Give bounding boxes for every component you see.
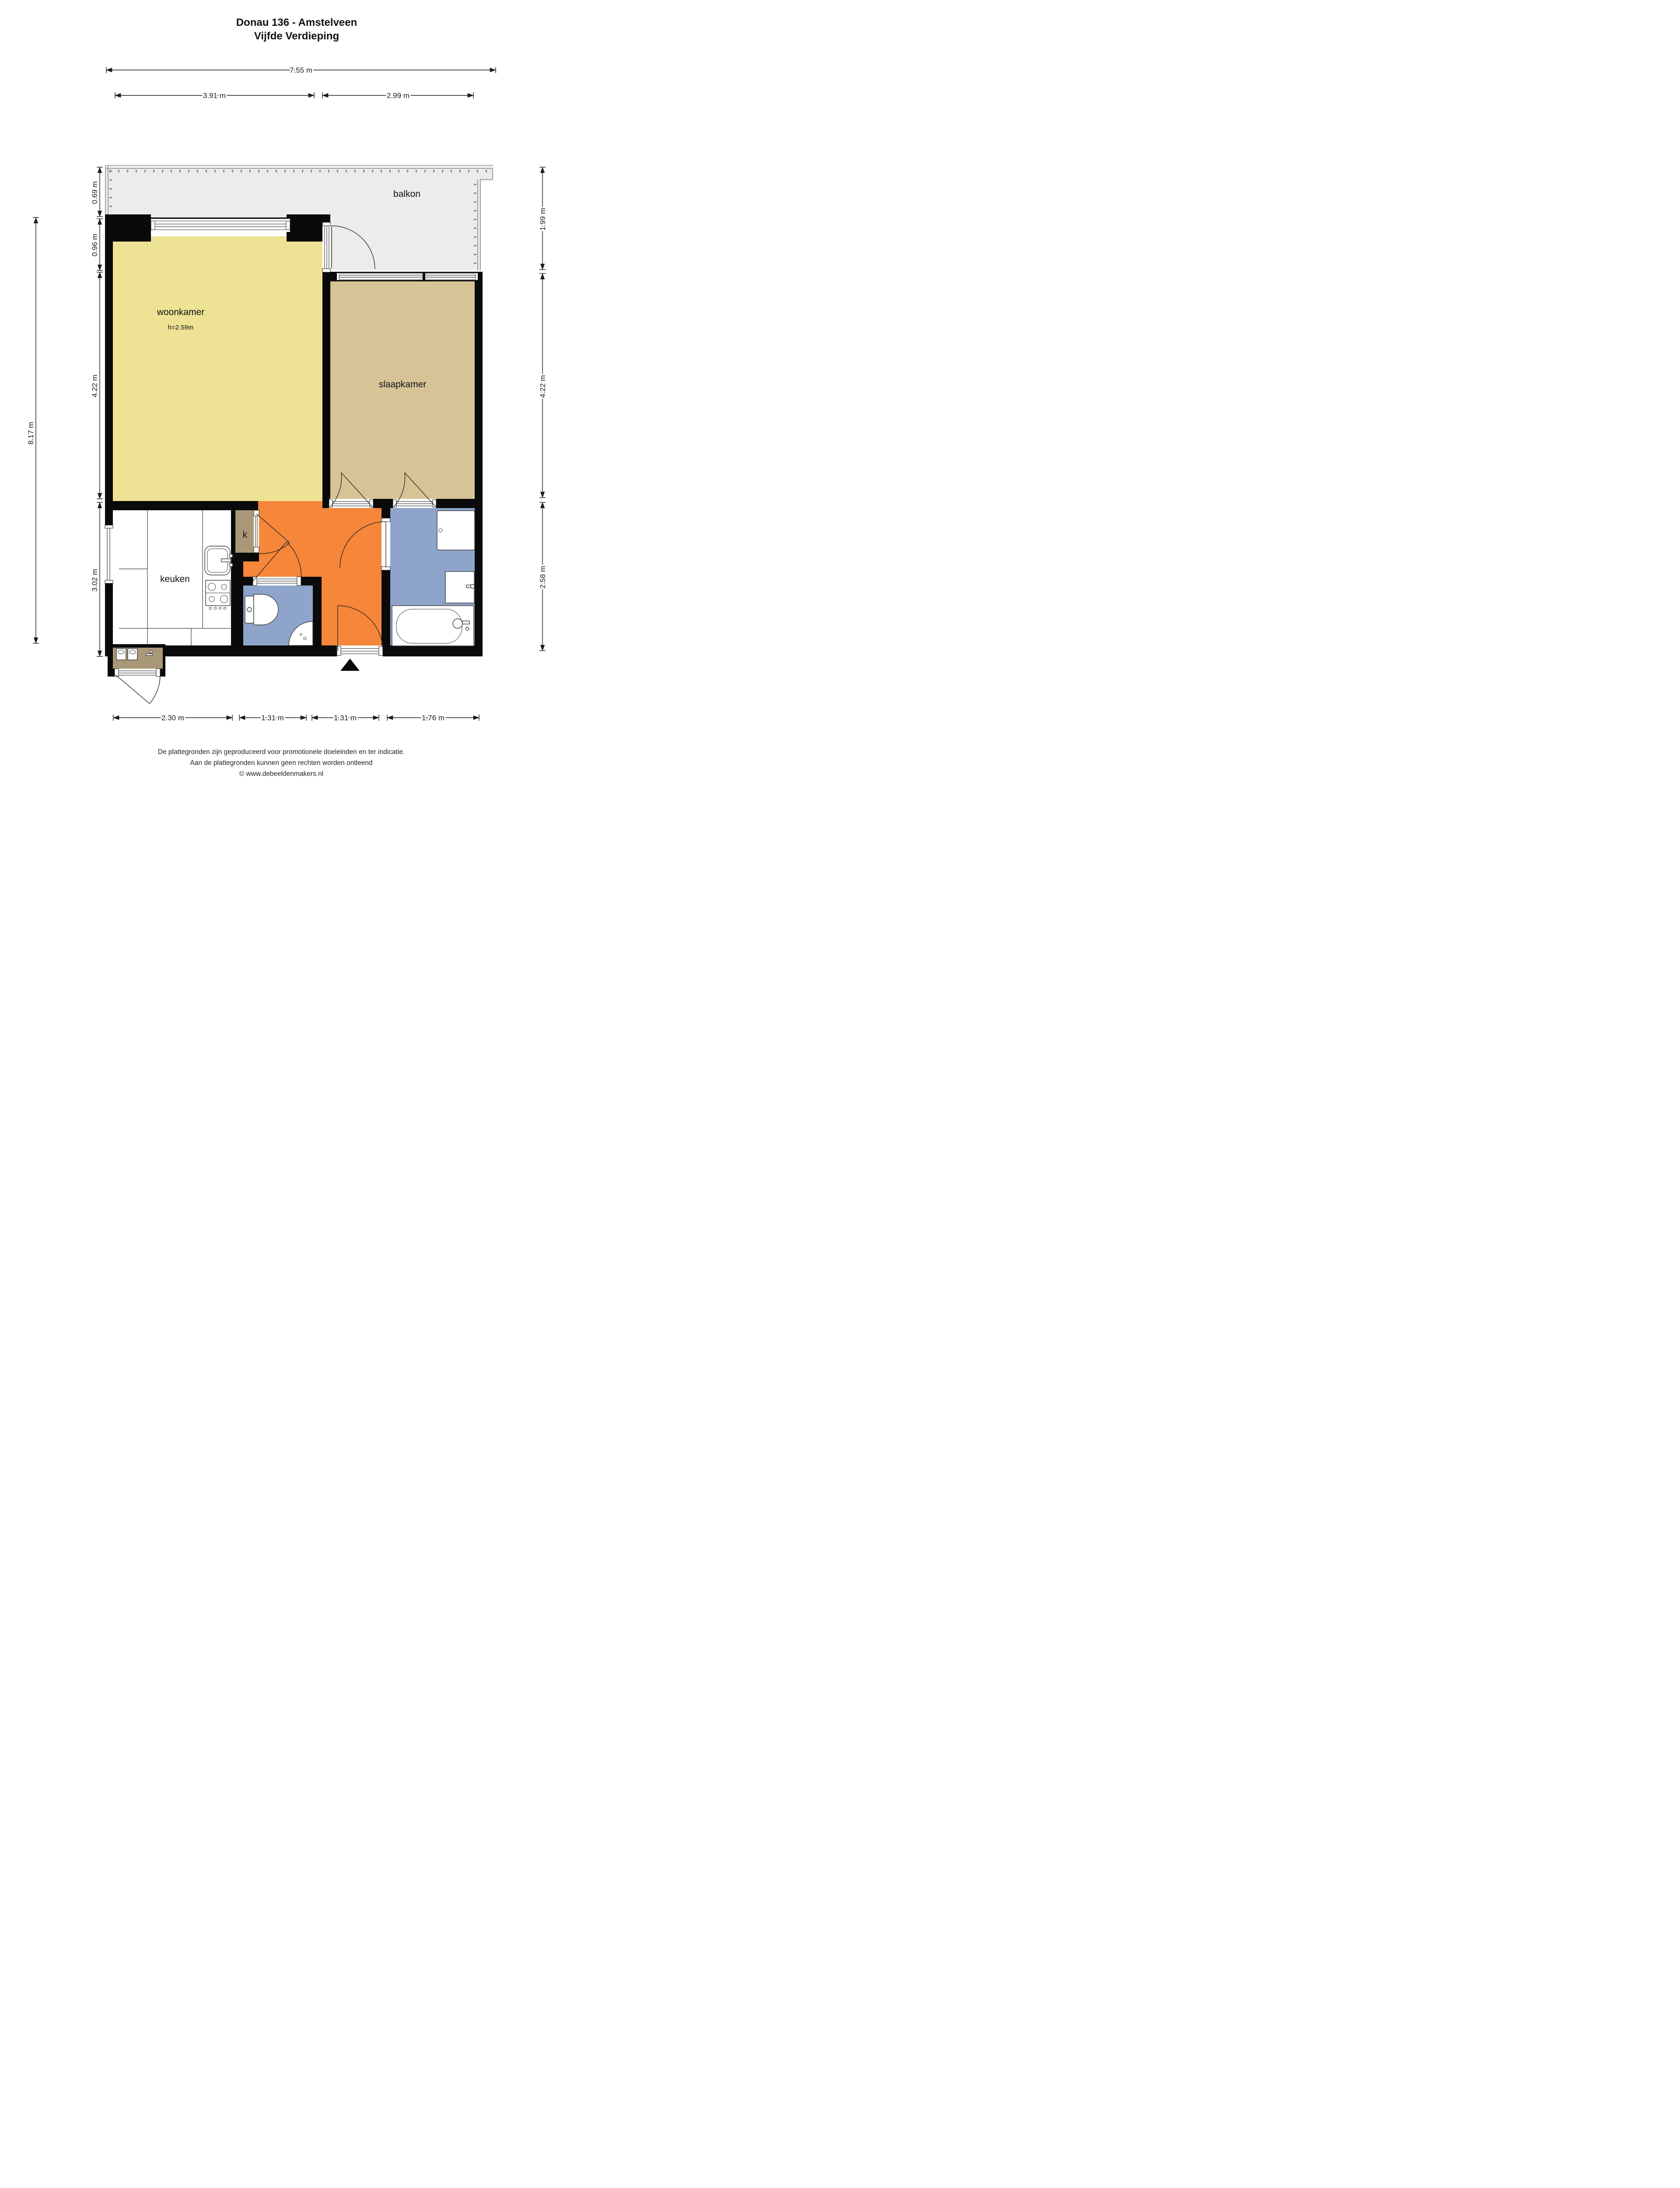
room-woonkamer — [113, 236, 322, 501]
dim-bottom-2: 1.31 m — [312, 714, 379, 722]
svg-text:1.99 m: 1.99 m — [539, 208, 547, 231]
dim-left-2: 4.22 m — [91, 272, 103, 499]
page-title: Donau 136 - Amstelveen Vijfde Verdieping — [236, 16, 357, 43]
wall-corner-topleft — [105, 214, 151, 242]
dim-left-1: 0.96 m — [91, 219, 103, 270]
toilet-fixture — [245, 594, 278, 625]
floor-plan-svg: balkon woonkamer h=2.59m slaapkamer keuk… — [0, 0, 560, 792]
dim-top-left: 3.91 m — [115, 91, 314, 100]
window-slaapkamer-top — [337, 272, 478, 281]
footer-disclaimer: De plattegronden zijn geproduceerd voor … — [158, 747, 405, 779]
svg-text:4.22 m: 4.22 m — [539, 375, 547, 398]
wall-keuken-right-lower — [231, 553, 243, 656]
label-woonkamer: woonkamer — [157, 307, 205, 317]
svg-text:1.31 m: 1.31 m — [334, 714, 357, 722]
kitchen-stove — [206, 580, 230, 610]
dim-left-0: 0.69 m — [91, 167, 103, 217]
dim-top-total: 7.55 m — [106, 66, 496, 74]
wall-keuken-right-upper — [231, 510, 235, 553]
title-floor: Vijfde Verdieping — [236, 29, 357, 43]
washing-machine — [437, 511, 475, 550]
washbasin — [445, 572, 475, 603]
svg-text:2.30 m: 2.30 m — [161, 714, 184, 722]
label-kast: k — [243, 530, 248, 540]
room-slaapkamer — [330, 281, 475, 499]
label-keuken: keuken — [160, 574, 190, 584]
wall-right-outer — [475, 272, 483, 656]
svg-text:3.02 m: 3.02 m — [91, 569, 99, 592]
bathtub — [392, 606, 474, 646]
label-hal: hal — [308, 578, 320, 588]
svg-text:0.69 m: 0.69 m — [91, 181, 99, 204]
door-utility — [115, 669, 160, 704]
dim-right-0: 1.99 m — [539, 167, 547, 270]
svg-text:4.22 m: 4.22 m — [91, 375, 99, 397]
svg-text:2.99 m: 2.99 m — [387, 91, 409, 100]
entrance-arrow — [340, 659, 360, 671]
dim-bottom-0: 2.30 m — [113, 714, 232, 722]
wall-left-outer — [105, 217, 113, 656]
dim-top-right: 2.99 m — [322, 91, 473, 100]
wall-toilet-right — [313, 577, 322, 656]
dim-left-3: 3.02 m — [91, 502, 103, 656]
window-woonkamer-top — [151, 219, 290, 232]
footer-line-3: © www.debeeldenmakers.nl — [158, 768, 405, 779]
label-balkon: balkon — [393, 189, 420, 199]
window-keuken-left — [105, 525, 113, 583]
wall-keuken-top — [105, 501, 258, 510]
svg-text:1.31 m: 1.31 m — [261, 714, 284, 722]
svg-text:1.76 m: 1.76 m — [422, 714, 444, 722]
dim-bottom-3: 1.76 m — [387, 714, 479, 722]
svg-text:7.55 m: 7.55 m — [290, 66, 312, 74]
wall-kast-bottom — [231, 553, 259, 561]
title-address: Donau 136 - Amstelveen — [236, 16, 357, 29]
label-woonkamer-height: h=2.59m — [168, 324, 194, 331]
dim-right-2: 2.58 m — [539, 502, 547, 651]
svg-text:0.96 m: 0.96 m — [91, 234, 99, 256]
dim-bottom-1: 1.31 m — [239, 714, 306, 722]
dim-left-outer: 8.17 m — [27, 217, 39, 643]
svg-text:2.58 m: 2.58 m — [539, 566, 547, 589]
floorplan-page: Donau 136 - Amstelveen Vijfde Verdieping — [0, 0, 560, 792]
footer-line-1: De plattegronden zijn geproduceerd voor … — [158, 747, 405, 757]
label-slaapkamer: slaapkamer — [379, 379, 427, 389]
footer-line-2: Aan de plattegronden kunnen geen rechten… — [158, 757, 405, 768]
kitchen-sink — [205, 546, 233, 575]
svg-text:3.91 m: 3.91 m — [203, 91, 226, 100]
dim-right-1: 4.22 m — [539, 273, 547, 498]
svg-text:8.17 m: 8.17 m — [27, 422, 35, 445]
